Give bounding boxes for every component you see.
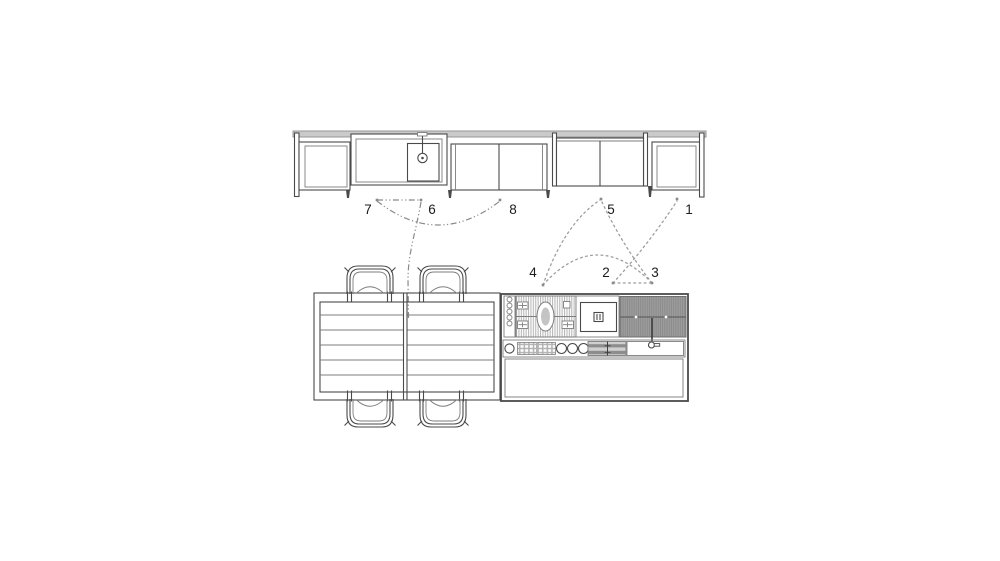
- kitchen-island: [501, 294, 688, 401]
- island-open-shelf: [505, 359, 683, 397]
- cabinet-module-4: [553, 133, 648, 186]
- control-panel-grid: [518, 343, 556, 355]
- cooktop-grill-icon: [516, 296, 576, 337]
- callout-7: 7: [364, 202, 372, 217]
- sink-cabinet-module: [351, 133, 447, 186]
- island-front-band: [503, 340, 685, 357]
- drawing-canvas: 7 6 8 5 1 4 2 3: [0, 0, 1000, 561]
- end-panel: [295, 133, 300, 197]
- dial-icon: [579, 344, 589, 354]
- drain-dot: [635, 316, 638, 319]
- callout-1: 1: [685, 202, 693, 217]
- cabinet-module-1: [295, 133, 351, 197]
- kitchen-plan-drawing: 7 6 8 5 1 4 2 3: [0, 0, 1000, 561]
- oven-section: [576, 296, 619, 337]
- cabinet-module-3: [451, 144, 547, 190]
- cabinet-box: [652, 142, 700, 190]
- page-background: [0, 0, 1000, 561]
- control-knob-icon: [505, 344, 514, 353]
- callout-8: 8: [509, 202, 517, 217]
- callout-5: 5: [607, 202, 615, 217]
- callout-6: 6: [428, 202, 436, 217]
- cabinet-module-5: [652, 133, 704, 197]
- vent-grille: [588, 342, 626, 356]
- burner-switch-icon: [564, 302, 571, 309]
- burner-slider-icon: [518, 321, 529, 329]
- dial-icon: [568, 344, 578, 354]
- end-panel: [700, 133, 705, 197]
- dial-icon: [557, 344, 567, 354]
- callout-3: 3: [651, 265, 659, 280]
- burner-core: [541, 308, 550, 326]
- side-post: [553, 133, 557, 186]
- burner-slider-icon: [562, 321, 574, 329]
- cabinet-box: [299, 142, 350, 190]
- callout-4: 4: [529, 265, 537, 280]
- drain-dot: [665, 316, 668, 319]
- island-worktop-band: [504, 296, 686, 342]
- callout-2: 2: [602, 265, 610, 280]
- side-post: [644, 133, 648, 186]
- drainer-grill-section: [620, 297, 686, 343]
- burner-slider-icon: [518, 302, 529, 309]
